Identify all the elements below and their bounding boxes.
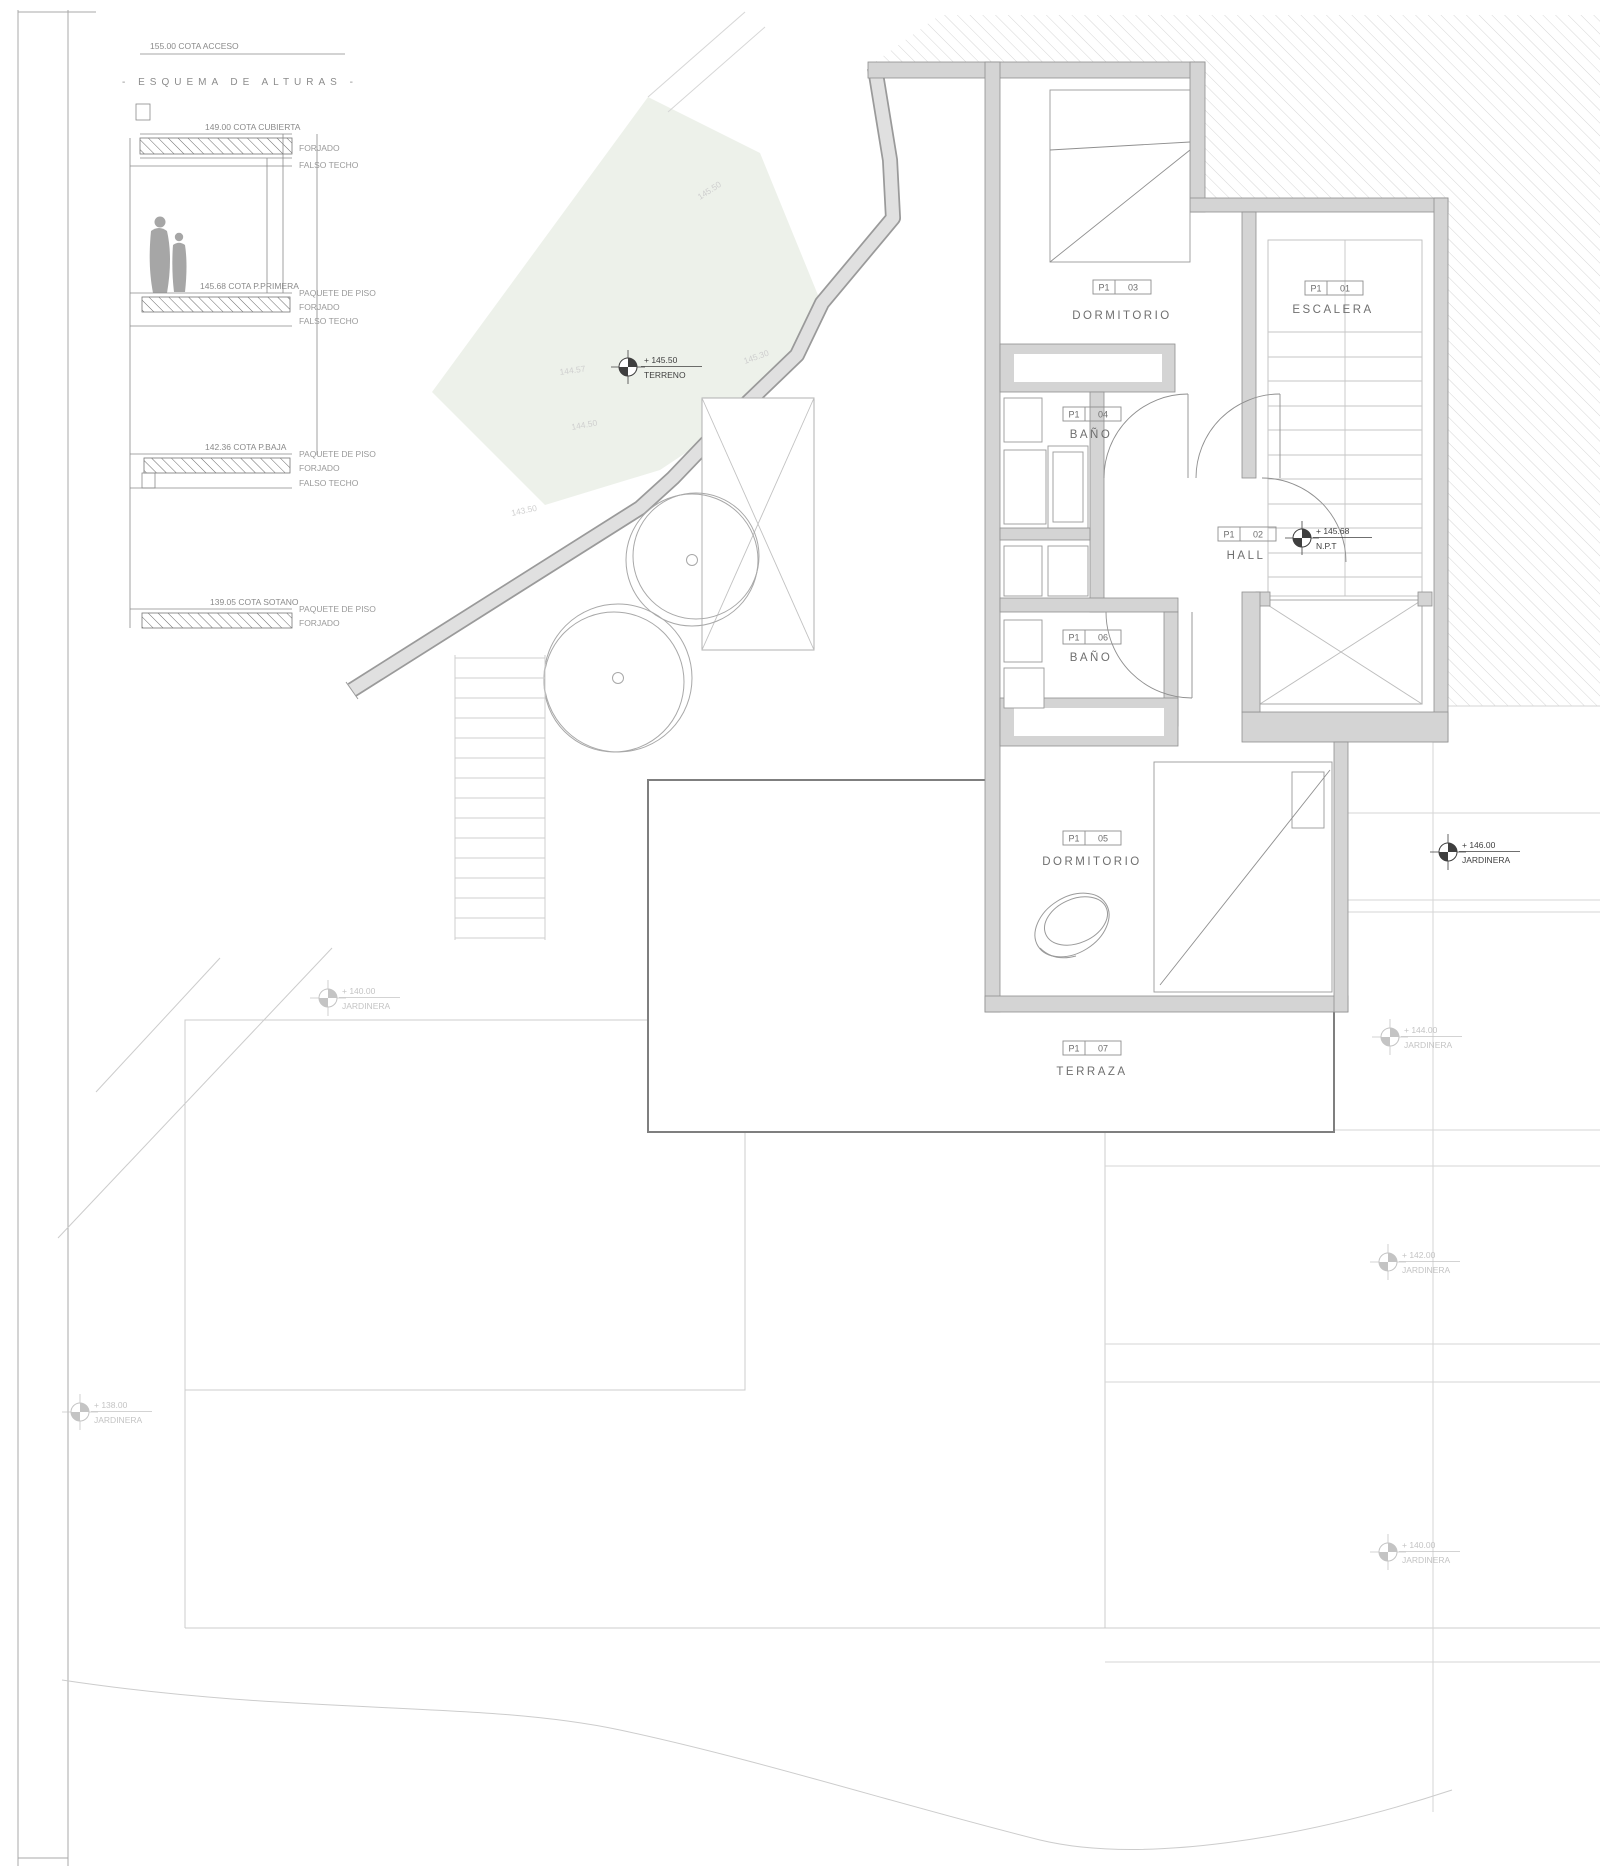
marker-label: N.P.T	[1316, 541, 1337, 551]
room-number: 06	[1098, 633, 1108, 643]
paquete-label: PAQUETE DE PISO	[299, 604, 376, 614]
room-name: ESCALERA	[1292, 304, 1373, 316]
cota-acceso-label: 155.00 COTA ACCESO	[150, 41, 239, 51]
jardinera-marker-142: + 142.00 JARDINERA	[1370, 1244, 1460, 1280]
room-code: P1	[1068, 834, 1079, 844]
jardinera-marker-bottom-left: + 138.00 JARDINERA	[62, 1394, 152, 1430]
marker-value: + 144.00	[1404, 1025, 1438, 1035]
marker-value: + 140.00	[1402, 1540, 1436, 1550]
room-name: BAÑO	[1070, 428, 1113, 441]
marker-label: JARDINERA	[1402, 1265, 1451, 1275]
paquete-label: PAQUETE DE PISO	[299, 449, 376, 459]
architectural-plan-sheet: P1 03 DORMITORIO P1 01 ESCALERA P1 04 BA…	[0, 0, 1600, 1873]
sheet-frame	[18, 10, 96, 1866]
void-skylight-box	[702, 398, 814, 650]
room-code: P1	[1068, 1044, 1079, 1054]
access-ramp-lines	[648, 12, 765, 112]
floor-plan-drawing: P1 03 DORMITORIO P1 01 ESCALERA P1 04 BA…	[0, 0, 1600, 1873]
marker-label: JARDINERA	[1462, 855, 1511, 865]
marker-label: JARDINERA	[342, 1001, 391, 1011]
room-name: HALL	[1227, 550, 1266, 562]
room-number: 01	[1340, 284, 1350, 294]
paquete-label: PAQUETE DE PISO	[299, 288, 376, 298]
cota-sotano: 139.05 COTA SOTANO	[210, 597, 299, 607]
marker-value: + 146.00	[1462, 840, 1496, 850]
people-silhouettes	[150, 217, 187, 294]
room-number: 07	[1098, 1044, 1108, 1054]
forjado-label: FORJADO	[299, 302, 340, 312]
cota-cubierta: 149.00 COTA CUBIERTA	[205, 122, 301, 132]
esquema-title: - ESQUEMA DE ALTURAS -	[122, 77, 358, 88]
room-code: P1	[1098, 283, 1109, 293]
jardinera-marker-146: + 146.00 JARDINERA	[1430, 834, 1520, 870]
marker-value: + 145.68	[1316, 526, 1350, 536]
marker-label: JARDINERA	[1402, 1555, 1451, 1565]
contour-value: 143.50	[510, 503, 538, 518]
marker-value: + 142.00	[1402, 1250, 1436, 1260]
room-number: 03	[1128, 283, 1138, 293]
esquema-de-alturas: 155.00 COTA ACCESO - ESQUEMA DE ALTURAS …	[122, 41, 376, 628]
forjado-label: FORJADO	[299, 143, 340, 153]
room-number: 04	[1098, 410, 1108, 420]
room-code: P1	[1068, 633, 1079, 643]
falso-techo-label: FALSO TECHO	[299, 478, 359, 488]
room-code: P1	[1223, 530, 1234, 540]
room-code: P1	[1068, 410, 1079, 420]
cota-primera: 145.68 COTA P.PRIMERA	[200, 281, 299, 291]
exterior-stair	[455, 655, 545, 940]
elevator-shaft	[1256, 592, 1432, 704]
marker-value: + 138.00	[94, 1400, 128, 1410]
marker-label: JARDINERA	[94, 1415, 143, 1425]
marker-value: + 140.00	[342, 986, 376, 996]
room-name: DORMITORIO	[1072, 310, 1172, 322]
room-name: TERRAZA	[1056, 1066, 1127, 1078]
cota-baja: 142.36 COTA P.BAJA	[205, 442, 287, 452]
bed-dormitorio-03	[1050, 90, 1190, 262]
forjado-label: FORJADO	[299, 618, 340, 628]
jardinera-marker-left: + 140.00 JARDINERA	[310, 980, 400, 1016]
jardinera-marker-144: + 144.00 JARDINERA	[1372, 1019, 1462, 1055]
room-number: 05	[1098, 834, 1108, 844]
marker-value: + 145.50	[644, 355, 678, 365]
room-number: 02	[1253, 530, 1263, 540]
jardinera-marker-140-right: + 140.00 JARDINERA	[1370, 1534, 1460, 1570]
room-code: P1	[1310, 284, 1321, 294]
forjado-label: FORJADO	[299, 463, 340, 473]
marker-label: TERRENO	[644, 370, 686, 380]
room-name: DORMITORIO	[1042, 856, 1142, 868]
marker-label: JARDINERA	[1404, 1040, 1453, 1050]
falso-techo-label: FALSO TECHO	[299, 316, 359, 326]
room-name: BAÑO	[1070, 651, 1113, 664]
falso-techo-label: FALSO TECHO	[299, 160, 359, 170]
bed-dormitorio-05	[1154, 762, 1332, 992]
